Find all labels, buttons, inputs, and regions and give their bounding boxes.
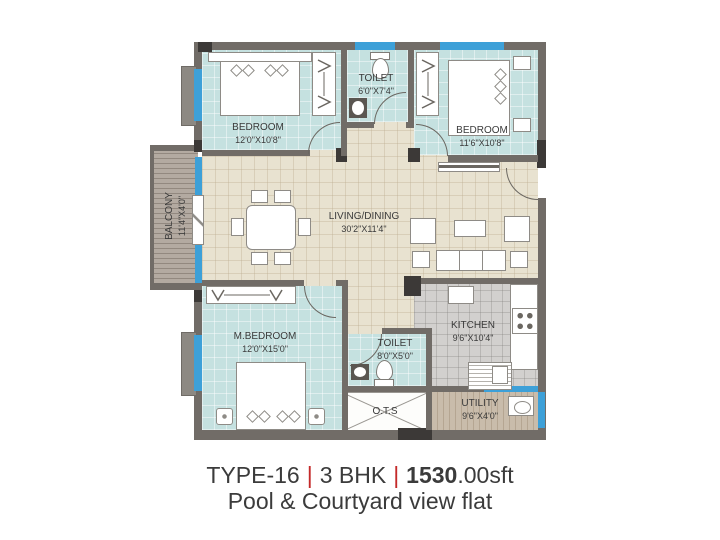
wall-bottom: [194, 430, 546, 440]
tv-unit: [438, 162, 500, 172]
mbedroom-label: M.BEDROOM: [215, 331, 315, 343]
caption-separator: |: [307, 462, 313, 488]
caption-line2: Pool & Courtyard view flat: [0, 488, 720, 514]
utility-label: UTILITY: [430, 398, 530, 410]
caption-separator: |: [393, 462, 399, 488]
kitchen-fridge: [448, 286, 474, 304]
mbedroom-side-table: [216, 408, 233, 425]
wc-tank-icon: [374, 379, 394, 387]
kitchen-sink: [492, 366, 508, 384]
toilet1-window: [355, 42, 395, 50]
toilet2-size: 8'0"X5'0": [355, 350, 435, 362]
dining-chair: [274, 190, 291, 203]
bedroom1-headboard: [208, 52, 312, 62]
dining-table: [246, 205, 296, 250]
caption-line1: TYPE-16|3 BHK|1530.00sft: [0, 462, 720, 488]
balcony-wall-bottom: [150, 283, 202, 290]
pier-left-balcony-top: [194, 140, 202, 152]
balcony-slider-door: [192, 195, 204, 245]
bedroom2-label: BEDROOM: [432, 125, 532, 137]
caption: TYPE-16|3 BHK|1530.00sft Pool & Courtyar…: [0, 462, 720, 514]
bedroom2-size: 11'6"X10'8": [432, 137, 532, 149]
kitchen-label: KITCHEN: [423, 320, 523, 332]
bedroom2-wall-bottom: [448, 155, 538, 162]
mbedroom-size: 12'0"X15'0": [215, 343, 315, 355]
kitchen-size: 9'6"X10'4": [423, 332, 523, 344]
pier-right-shaft: [537, 140, 546, 168]
floor-plan: BEDROOM 12'0"X10'8" TOILET 6'0"X7'4" BED…: [148, 40, 552, 444]
bedroom1-window: [194, 69, 202, 121]
wc-icon: [376, 360, 393, 381]
dining-chair: [251, 252, 268, 265]
balcony-glass-lower: [195, 245, 202, 283]
bedroom2-side-table-top: [513, 56, 531, 70]
mbedroom-wardrobe: [206, 286, 296, 304]
pier-top-left: [198, 42, 212, 52]
sofa: [436, 250, 506, 271]
kitchen-entry-pier: [404, 276, 421, 296]
dining-chair: [251, 190, 268, 203]
living-size: 30'2"X11'4": [304, 223, 424, 235]
dining-chair: [274, 252, 291, 265]
toilet1-wall-right: [408, 50, 414, 128]
bedroom1-wall-bottom: [202, 150, 310, 156]
dining-chair: [231, 218, 244, 236]
toilet1-wall-bottom-left: [347, 122, 374, 128]
bedroom1-label: BEDROOM: [208, 122, 308, 134]
caption-config: 3 BHK: [320, 462, 386, 488]
mbedroom-window: [194, 335, 202, 391]
toilet1-wall-bottom-right: [406, 122, 414, 128]
toilet1-label: TOILET: [346, 73, 406, 85]
balcony-size: 11'4"X4'0": [176, 166, 188, 266]
balcony-label: BALCONY: [164, 166, 176, 266]
bedroom1-size: 12'0"X10'8": [208, 134, 308, 146]
coffee-table: [454, 220, 486, 237]
washbasin-icon: [351, 364, 369, 380]
mbedroom-side-table: [308, 408, 325, 425]
utility-window-right: [538, 392, 545, 428]
balcony-wall-left: [150, 145, 154, 290]
pier-left-balcony-bottom: [194, 290, 202, 302]
utility-size: 9'6"X4'0": [430, 410, 530, 422]
washbasin-icon: [349, 98, 367, 118]
toilet1-size: 6'0"X7'4": [346, 85, 406, 97]
caption-type: TYPE-16: [206, 462, 299, 488]
living-label: LIVING/DINING: [304, 211, 424, 223]
bedroom2-wardrobe: [416, 52, 439, 116]
bedroom2-window: [440, 42, 504, 50]
sofa-side-table: [510, 251, 528, 268]
balcony-glass-upper: [195, 157, 202, 195]
bedroom1-wardrobe: [312, 52, 336, 116]
armchair: [504, 216, 530, 242]
bedroom1-wall-right: [341, 50, 347, 156]
caption-area: 1530.00sft: [406, 462, 513, 488]
ots-label: O.T.S: [345, 406, 425, 418]
sofa-side-table: [412, 251, 430, 268]
